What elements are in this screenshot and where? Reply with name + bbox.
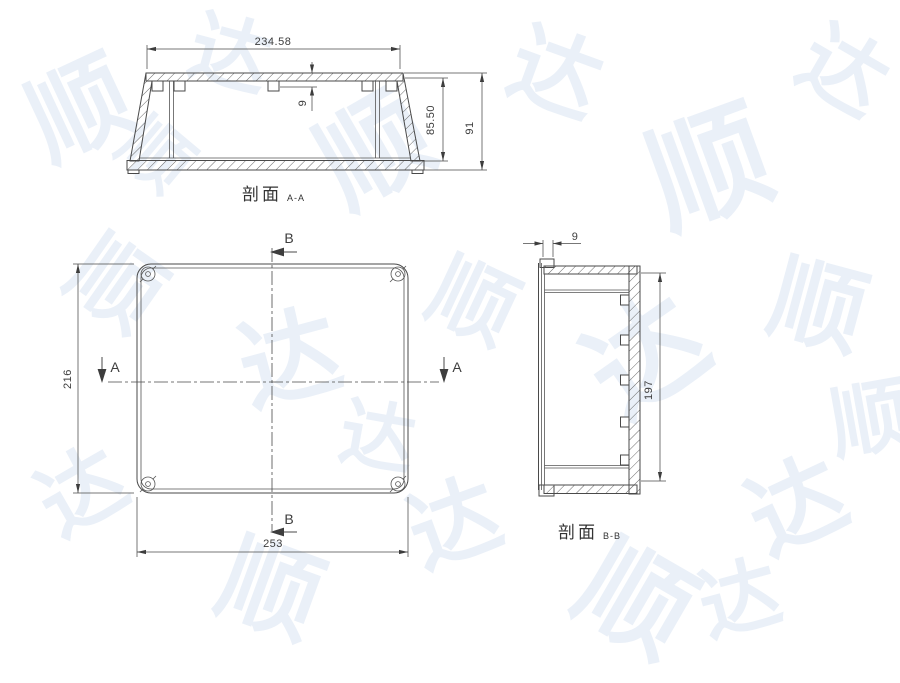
aa-top-wall bbox=[146, 73, 403, 81]
plan-dim-width: 253 bbox=[137, 497, 408, 557]
aa-view-title-suffix: A-A bbox=[287, 193, 305, 203]
bb-boss bbox=[621, 375, 630, 385]
aa-boss bbox=[362, 81, 373, 91]
plan-section-marker-a-right: A bbox=[440, 357, 463, 383]
bb-boss bbox=[621, 417, 630, 427]
engineering-drawing: 234.58 9 85.50 91 bbox=[0, 0, 900, 637]
aa-boss bbox=[174, 81, 185, 91]
plan-dim-width-label: 253 bbox=[263, 538, 283, 550]
aa-dim-width-label: 234.58 bbox=[255, 36, 292, 48]
marker-b-label: B bbox=[284, 511, 293, 527]
plan-dim-height-label: 216 bbox=[62, 369, 74, 389]
bb-boss bbox=[621, 455, 630, 465]
view-section-aa: 234.58 9 85.50 91 bbox=[127, 36, 487, 204]
plan-outer-outline bbox=[137, 264, 408, 493]
bb-bottom-wall bbox=[544, 485, 637, 494]
bb-boss bbox=[621, 335, 630, 345]
plan-section-marker-b-top: B bbox=[270, 230, 297, 256]
bb-dim-height-label: 197 bbox=[643, 380, 655, 400]
view-section-bb: 9 197 剖面 B-B bbox=[523, 231, 666, 542]
bb-right-wall bbox=[629, 266, 640, 494]
aa-right-wall bbox=[397, 73, 420, 161]
aa-boss bbox=[268, 81, 279, 91]
bb-view-title-suffix: B-B bbox=[603, 531, 621, 541]
view-plan: A A B B 216 bbox=[62, 230, 462, 557]
aa-bottom-flange bbox=[127, 161, 424, 171]
bb-dim-height: 197 bbox=[641, 273, 666, 481]
aa-dim-boss-depth-label: 9 bbox=[297, 100, 309, 107]
aa-dim-boss-depth: 9 bbox=[280, 62, 317, 111]
plan-section-marker-b-bottom: B bbox=[270, 511, 297, 536]
aa-boss bbox=[152, 81, 163, 91]
plan-section-marker-a-left: A bbox=[98, 357, 121, 383]
marker-a-label: A bbox=[110, 359, 120, 375]
aa-left-wall bbox=[130, 73, 152, 161]
bb-dim-lip: 9 bbox=[523, 231, 581, 257]
aa-dim-width: 234.58 bbox=[147, 36, 400, 69]
plan-inner-outline bbox=[141, 268, 404, 489]
marker-b-label: B bbox=[284, 230, 293, 246]
marker-a-label: A bbox=[452, 359, 462, 375]
aa-dim-outer-height-label: 91 bbox=[464, 121, 476, 134]
aa-dim-inner-height-label: 85.50 bbox=[425, 105, 437, 135]
bb-top-wall bbox=[544, 266, 637, 274]
aa-boss bbox=[386, 81, 397, 91]
bb-boss bbox=[621, 295, 630, 305]
bb-dim-lip-label: 9 bbox=[572, 231, 579, 243]
bb-view-title: 剖面 bbox=[558, 523, 598, 542]
aa-right-foot bbox=[412, 170, 423, 174]
aa-view-title: 剖面 bbox=[242, 185, 282, 204]
plan-dim-height: 216 bbox=[62, 264, 134, 493]
aa-left-foot bbox=[128, 170, 139, 174]
